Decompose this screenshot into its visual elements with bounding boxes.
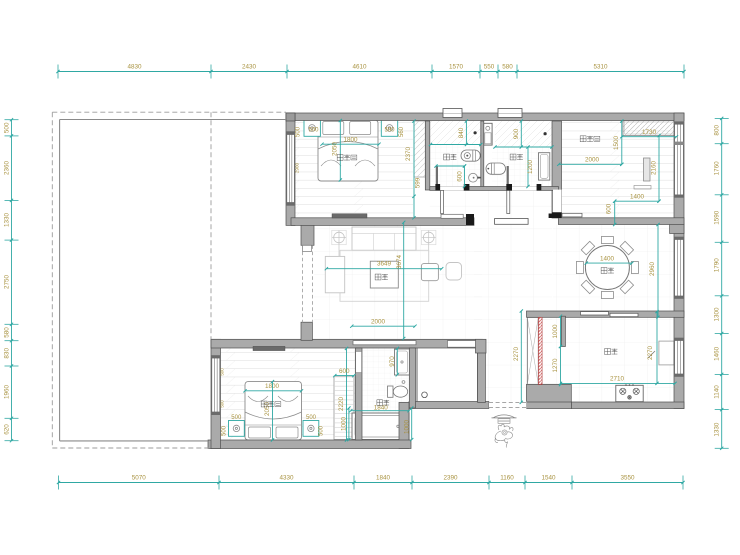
svg-text:2960: 2960 (649, 262, 656, 277)
svg-text:500: 500 (308, 128, 319, 134)
svg-text:1760: 1760 (714, 161, 721, 176)
svg-text:600: 600 (606, 203, 613, 214)
svg-text:1790: 1790 (714, 258, 721, 273)
svg-text:600: 600 (457, 171, 464, 182)
svg-text:900: 900 (513, 128, 520, 139)
svg-text:500: 500 (295, 126, 301, 137)
svg-text:3550: 3550 (620, 475, 635, 482)
svg-text:5070: 5070 (132, 475, 147, 482)
svg-text:1570: 1570 (449, 64, 464, 71)
svg-text:500: 500 (221, 425, 227, 436)
svg-text:2000: 2000 (371, 319, 386, 326)
svg-text:2750: 2750 (4, 275, 11, 290)
svg-text:1590: 1590 (714, 210, 721, 225)
svg-text:5310: 5310 (593, 64, 608, 71)
svg-text:840: 840 (458, 127, 465, 138)
svg-text:4830: 4830 (127, 64, 142, 71)
svg-text:2270: 2270 (513, 347, 520, 362)
svg-text:2160: 2160 (651, 161, 658, 176)
svg-text:2270: 2270 (647, 346, 654, 361)
svg-text:2710: 2710 (610, 376, 625, 383)
svg-text:2360: 2360 (4, 161, 11, 176)
svg-text:2390: 2390 (443, 475, 458, 482)
svg-text:600: 600 (339, 368, 350, 375)
svg-text:3649: 3649 (377, 261, 392, 268)
svg-text:620: 620 (4, 424, 11, 435)
svg-text:500: 500 (220, 368, 225, 376)
svg-text:1140: 1140 (714, 385, 721, 399)
svg-text:1160: 1160 (500, 475, 514, 482)
svg-text:1270: 1270 (552, 358, 559, 373)
svg-text:2370: 2370 (405, 147, 412, 162)
svg-text:830: 830 (4, 348, 11, 359)
svg-text:1330: 1330 (4, 213, 11, 228)
svg-text:1800: 1800 (343, 137, 358, 144)
svg-text:970: 970 (389, 356, 396, 367)
svg-text:1000: 1000 (404, 420, 411, 435)
svg-text:1460: 1460 (714, 346, 721, 361)
svg-text:3674: 3674 (396, 255, 403, 270)
svg-text:1330: 1330 (714, 422, 721, 437)
svg-text:580: 580 (4, 327, 11, 338)
svg-text:4330: 4330 (279, 475, 294, 482)
svg-text:2050: 2050 (332, 142, 339, 157)
svg-text:500: 500 (306, 415, 317, 421)
svg-text:1300: 1300 (714, 307, 721, 322)
svg-text:1400: 1400 (630, 194, 645, 201)
svg-text:1730: 1730 (642, 129, 657, 136)
svg-text:500: 500 (4, 122, 11, 133)
svg-text:1960: 1960 (4, 385, 11, 400)
svg-text:1500: 1500 (613, 136, 620, 151)
svg-text:550: 550 (484, 64, 495, 71)
svg-text:1840: 1840 (376, 475, 391, 482)
svg-text:500: 500 (318, 425, 324, 436)
svg-text:580: 580 (502, 64, 513, 71)
svg-text:2000: 2000 (585, 157, 600, 164)
svg-text:1000: 1000 (552, 324, 559, 339)
svg-text:4610: 4610 (352, 64, 367, 71)
svg-text:599: 599 (415, 177, 422, 188)
svg-text:560: 560 (399, 126, 405, 137)
svg-text:800: 800 (714, 125, 721, 136)
svg-text:1400: 1400 (600, 255, 615, 262)
svg-text:500: 500 (220, 400, 225, 408)
svg-text:500: 500 (231, 415, 242, 421)
svg-text:2220: 2220 (338, 397, 345, 412)
svg-text:2900: 2900 (294, 162, 299, 173)
svg-text:1000: 1000 (341, 417, 348, 432)
svg-text:2050: 2050 (264, 402, 271, 417)
svg-text:500: 500 (384, 128, 395, 134)
svg-text:1540: 1540 (541, 475, 556, 482)
svg-text:1200: 1200 (527, 160, 534, 175)
svg-text:2430: 2430 (242, 64, 257, 71)
